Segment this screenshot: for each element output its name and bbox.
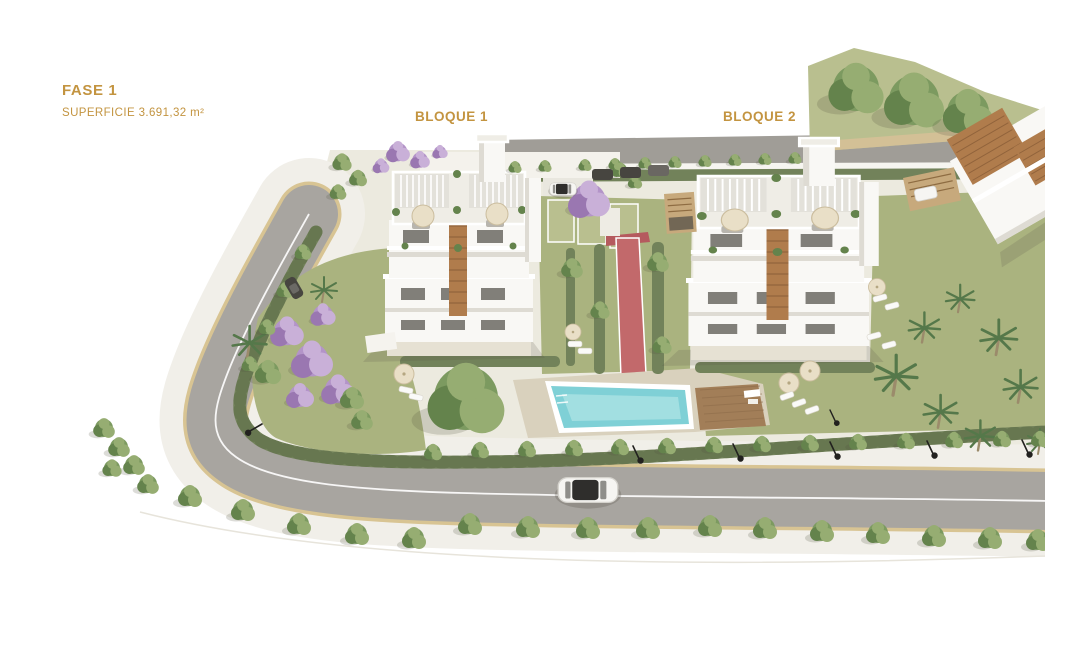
bloque-2-label: BLOQUE 2 <box>723 109 796 124</box>
white-car-parked <box>548 183 578 199</box>
site-plan-render <box>0 0 1070 650</box>
swimming-pool <box>545 381 694 433</box>
bloque-1-label: BLOQUE 1 <box>415 109 488 124</box>
phase-label: FASE 1 <box>62 82 117 99</box>
parked-car <box>648 165 669 176</box>
sun-umbrella <box>779 373 799 393</box>
sun-umbrella <box>800 361 820 381</box>
parked-car <box>620 167 641 178</box>
parked-car <box>592 169 613 180</box>
area-label: SUPERFICIE 3.691,32 m² <box>62 107 204 119</box>
screenshot-root: FASE 1 SUPERFICIE 3.691,32 m² BLOQUE 1 B… <box>0 0 1070 650</box>
carport <box>664 192 697 234</box>
white-car-road <box>555 478 622 509</box>
pool-area <box>513 368 770 438</box>
